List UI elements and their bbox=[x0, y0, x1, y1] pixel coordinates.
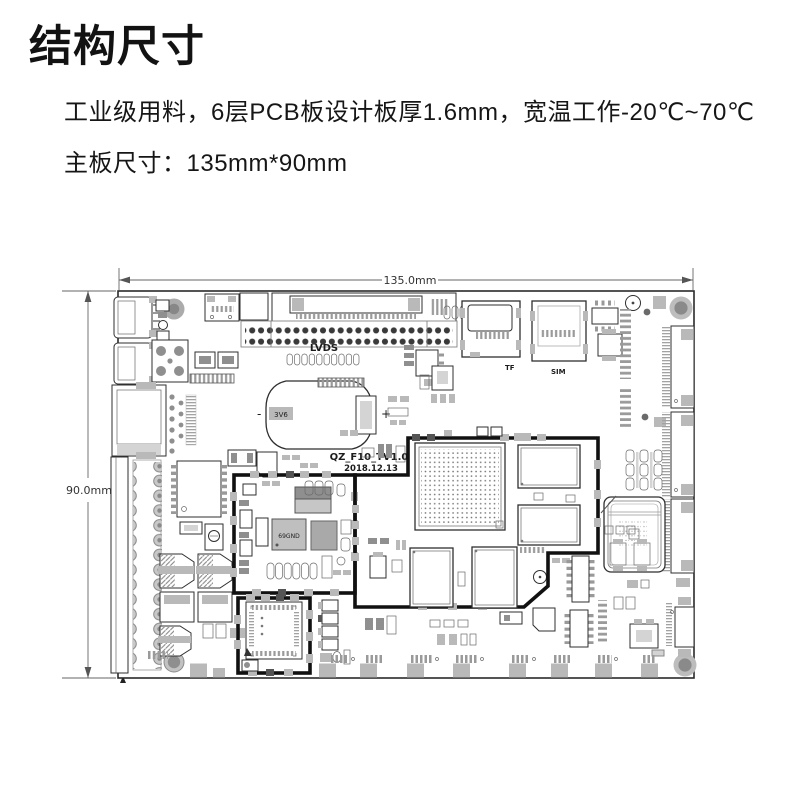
tf-label: TF bbox=[505, 364, 515, 372]
height-dimension-label: 90.0mm bbox=[66, 484, 112, 497]
arrow-down bbox=[85, 667, 92, 678]
width-dimension-label: 135.0mm bbox=[384, 274, 437, 287]
structure-size-section: 结构尺寸 工业级用料，6层PCB板设计板厚1.6mm，宽温工作-20℃~70℃ … bbox=[0, 0, 800, 800]
arrow-left bbox=[119, 277, 130, 284]
pmic-marking: 69GND bbox=[278, 533, 300, 540]
fpc-connector bbox=[272, 293, 456, 322]
ram-chip-4 bbox=[472, 547, 517, 608]
ram-chip-2 bbox=[518, 505, 580, 545]
lvds-label: LVDS bbox=[310, 343, 338, 354]
battery-plus-label: + bbox=[381, 407, 391, 421]
edge-connectors-right bbox=[662, 326, 694, 657]
dc-jack bbox=[152, 340, 188, 382]
cpu-bga bbox=[415, 443, 505, 530]
ram-chip-3 bbox=[410, 548, 453, 607]
pcb-dimension-diagram: 135.0mm 90.0mm bbox=[0, 240, 800, 800]
board-model-label: QZ_F10_TV1.0 bbox=[330, 452, 409, 463]
battery-minus-label: - bbox=[257, 407, 261, 421]
arrow-up bbox=[85, 291, 92, 302]
usb-connector-2 bbox=[114, 343, 152, 384]
left-pin-header bbox=[111, 457, 162, 673]
edge-connector-4 bbox=[675, 607, 694, 647]
rf-part bbox=[156, 300, 169, 311]
arrow-right bbox=[682, 277, 693, 284]
usb-connector-1 bbox=[114, 297, 152, 338]
section-title: 结构尺寸 bbox=[29, 12, 205, 74]
dimension-width: 135.0mm bbox=[119, 268, 693, 290]
board-date-label: 2018.12.13 bbox=[344, 464, 398, 474]
battery-marking: 3V6 bbox=[274, 411, 288, 419]
spec-line-materials: 工业级用料，6层PCB板设计板厚1.6mm，宽温工作-20℃~70℃ bbox=[64, 92, 754, 127]
sim-label: SIM bbox=[551, 368, 566, 376]
lvds-header bbox=[241, 321, 457, 347]
top-left-parts bbox=[205, 293, 268, 321]
spec-line-board-size: 主板尺寸：135mm*90mm bbox=[64, 143, 348, 178]
ram-chip-1 bbox=[518, 445, 580, 488]
